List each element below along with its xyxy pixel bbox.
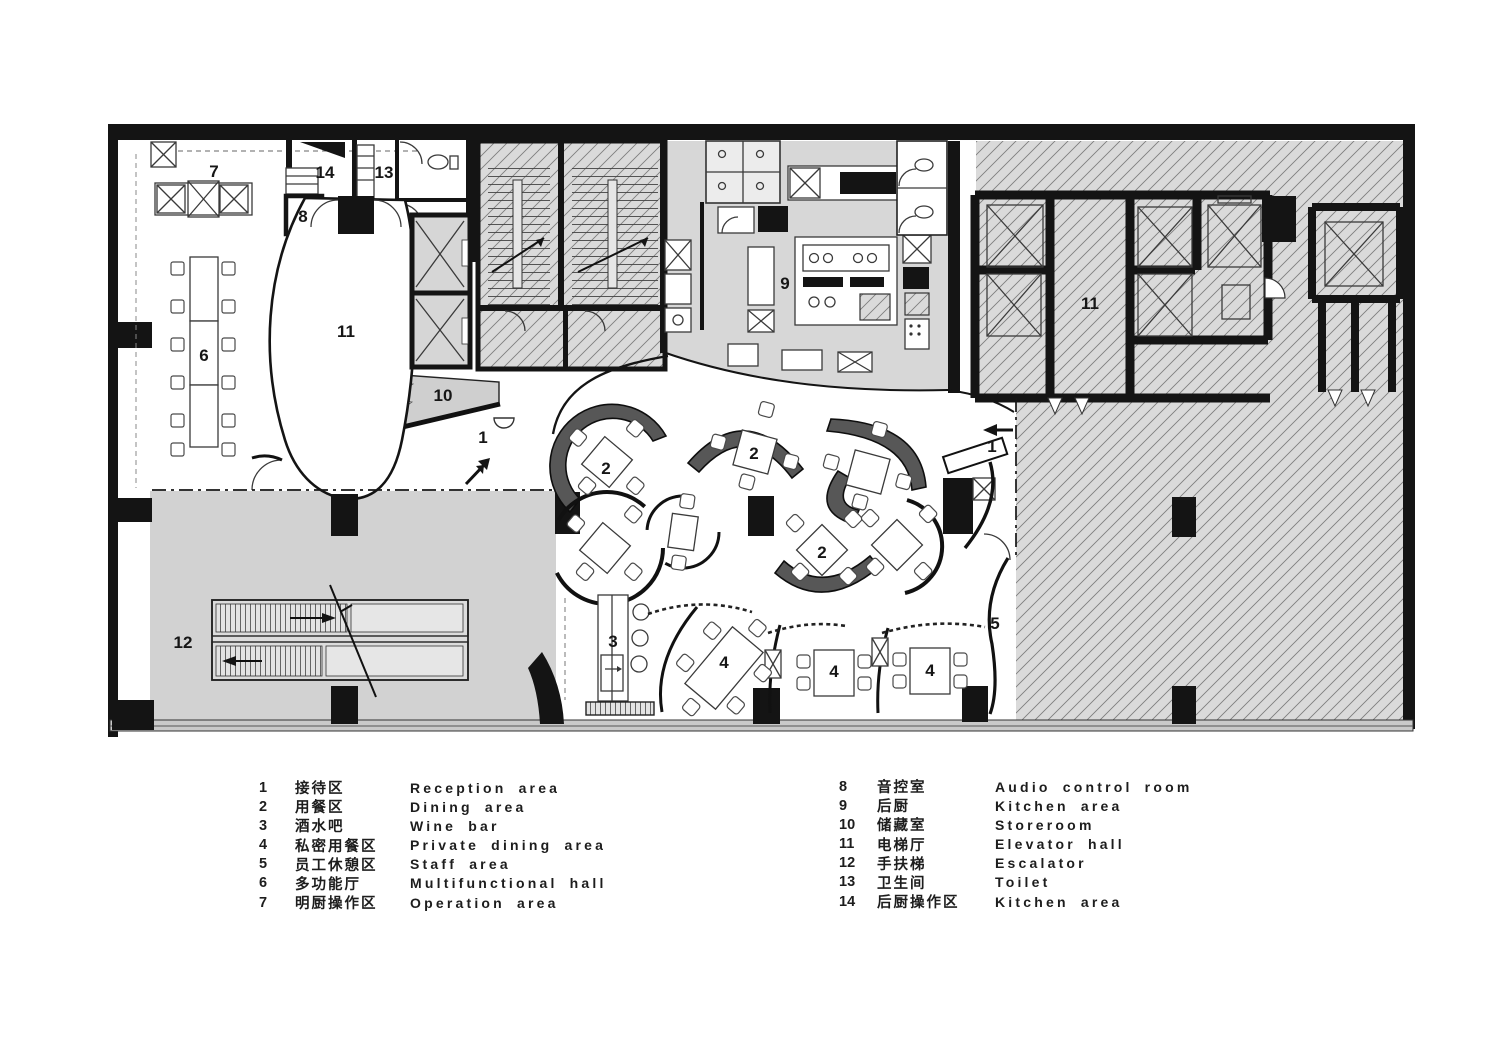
- legend-num: 5: [259, 856, 295, 872]
- legend-right-column: 8音控室Audio control room9后厨Kitchen area10储…: [839, 776, 1192, 910]
- legend-row: 4私密用餐区Private dining area: [259, 835, 607, 854]
- room-label-13: 13: [375, 163, 394, 182]
- legend-row: 12手扶梯Escalator: [839, 853, 1192, 872]
- legend-zh: 后厨操作区: [877, 891, 995, 912]
- room-label-7: 7: [209, 162, 218, 181]
- legend-row: 5员工休憩区Staff area: [259, 854, 607, 873]
- room-label-2: 2: [601, 459, 610, 478]
- legend-row: 7明厨操作区Operation area: [259, 892, 607, 911]
- legend-en: Staff area: [410, 856, 607, 872]
- room-label-1: 1: [987, 437, 996, 456]
- room-label-6: 6: [199, 346, 208, 365]
- room-label-11: 11: [337, 322, 355, 341]
- legend-zh: 手扶梯: [877, 853, 995, 874]
- legend-row: 3酒水吧Wine bar: [259, 815, 607, 834]
- legend-row: 10储藏室Storeroom: [839, 814, 1192, 833]
- legend-zh: 电梯厅: [877, 834, 995, 855]
- legend-num: 7: [259, 895, 295, 911]
- legend-en: Storeroom: [995, 817, 1192, 833]
- legend-row: 8音控室Audio control room: [839, 776, 1192, 795]
- legend-en: Dining area: [410, 799, 607, 815]
- legend-en: Escalator: [995, 855, 1192, 871]
- legend-en: Multifunctional hall: [410, 875, 607, 891]
- legend-num: 6: [259, 875, 295, 891]
- legend-en: Operation area: [410, 895, 607, 911]
- legend-zh: 接待区: [295, 777, 410, 798]
- legend-zh: 酒水吧: [295, 815, 410, 836]
- room-label-8: 8: [298, 207, 307, 226]
- room-label-11: 11: [1081, 294, 1099, 313]
- legend-zh: 私密用餐区: [295, 835, 410, 856]
- floor-plan-page: 71413811691110112223124445 1接待区Reception…: [0, 0, 1500, 1061]
- legend-en: Elevator hall: [995, 836, 1192, 852]
- legend-zh: 后厨: [877, 795, 995, 816]
- room-label-4: 4: [925, 661, 935, 680]
- legend-num: 14: [839, 894, 877, 910]
- room-label-2: 2: [749, 444, 758, 463]
- legend-num: 8: [839, 779, 877, 795]
- escalator: [212, 585, 468, 697]
- room-label-5: 5: [990, 614, 999, 633]
- legend-row: 14后厨操作区Kitchen area: [839, 891, 1192, 910]
- room-label-2: 2: [817, 543, 826, 562]
- legend-num: 1: [259, 780, 295, 796]
- floor-plan-drawing: 71413811691110112223124445: [0, 0, 1500, 1061]
- legend-num: 12: [839, 855, 877, 871]
- legend-zh: 音控室: [877, 776, 995, 797]
- legend-en: Private dining area: [410, 837, 607, 853]
- legend-zh: 用餐区: [295, 796, 410, 817]
- room-label-12: 12: [174, 633, 193, 652]
- legend-num: 10: [839, 817, 877, 833]
- legend-row: 11电梯厅Elevator hall: [839, 834, 1192, 853]
- legend-num: 11: [839, 836, 877, 852]
- legend-zh: 明厨操作区: [295, 892, 410, 913]
- legend-en: Kitchen area: [995, 894, 1192, 910]
- legend-en: Audio control room: [995, 779, 1192, 795]
- legend-en: Reception area: [410, 780, 607, 796]
- legend-zh: 储藏室: [877, 814, 995, 835]
- legend-row: 6多功能厅Multifunctional hall: [259, 873, 607, 892]
- legend-row: 2用餐区Dining area: [259, 796, 607, 815]
- legend-num: 9: [839, 798, 877, 814]
- legend-num: 4: [259, 837, 295, 853]
- left-elevators: [412, 215, 470, 367]
- legend-en: Kitchen area: [995, 798, 1192, 814]
- legend-num: 13: [839, 874, 877, 890]
- legend-row: 1接待区Reception area: [259, 777, 607, 796]
- legend-zh: 员工休憩区: [295, 854, 410, 875]
- room-label-9: 9: [780, 274, 789, 293]
- room-label-1: 1: [478, 428, 487, 447]
- legend-row: 9后厨Kitchen area: [839, 795, 1192, 814]
- room-label-4: 4: [719, 653, 729, 672]
- legend-num: 3: [259, 818, 295, 834]
- room-label-10: 10: [434, 386, 453, 405]
- legend-zh: 多功能厅: [295, 873, 410, 894]
- room-label-4: 4: [829, 662, 839, 681]
- legend-num: 2: [259, 799, 295, 815]
- legend-en: Wine bar: [410, 818, 607, 834]
- legend-row: 13卫生间Toilet: [839, 872, 1192, 891]
- legend-left-column: 1接待区Reception area2用餐区Dining area3酒水吧Win…: [259, 777, 607, 911]
- room-label-3: 3: [608, 632, 617, 651]
- legend-en: Toilet: [995, 874, 1192, 890]
- toilet-room-top-right: [897, 141, 947, 235]
- room-label-14: 14: [316, 163, 335, 182]
- legend-zh: 卫生间: [877, 872, 995, 893]
